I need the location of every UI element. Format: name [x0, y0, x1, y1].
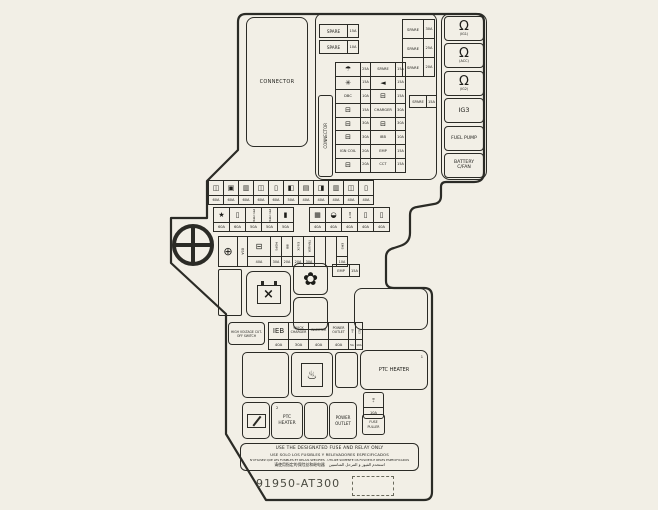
fuse-cell: INVERTER 40A — [308, 322, 329, 350]
spare-fuse-label: SPARE — [319, 24, 348, 38]
fuse-grid-row: ⊟ 30A IBB 10A — [335, 130, 405, 145]
relay-label: (ACC) — [459, 59, 469, 63]
fuse-label: ⊟ — [370, 117, 396, 132]
fuse-cell: ★ 60A — [213, 207, 230, 232]
fuse-rating: 10A — [356, 339, 362, 349]
fuse-label: EMP — [370, 144, 396, 159]
spare-fuse-rating: 20A — [424, 57, 435, 77]
fuse-cell: ▮ 50A — [277, 207, 294, 232]
fuse-rating: 30A — [289, 339, 308, 349]
fuse-rating: 40A — [329, 195, 343, 204]
display-icon — [247, 414, 266, 428]
fuse-label: EMS — [337, 237, 347, 256]
fuse-label: IGN COIL — [335, 144, 361, 159]
spare-fuse-rating: 15A — [348, 24, 359, 38]
relay-column: Ω (IG1) Ω (ACC) Ω (IG2) IG3 FUEL PUMP BA… — [444, 16, 484, 180]
fuse-rating: 40A — [358, 222, 373, 231]
fuse-rating: 20A — [282, 256, 292, 266]
spare-fuse-label: SPARE — [402, 19, 424, 39]
main-connector-box: CONNECTOR — [246, 17, 308, 147]
fuse-rating: 40A — [329, 339, 348, 349]
fuse-rating: 60A — [230, 222, 245, 231]
spare-fuse: SPARE 10A — [319, 40, 359, 54]
relay-box: Ω (ACC) — [444, 43, 484, 68]
spare-fuse-rating: 15A — [427, 95, 437, 108]
fuse-label: PTC HTR — [252, 209, 255, 222]
fuse-rating: 50A — [246, 222, 261, 231]
fuse-label: ⊟ — [335, 103, 361, 118]
power-outlet-box: POWER OUTLET — [329, 402, 357, 439]
spare-fuse: SPARE 30A — [402, 19, 435, 39]
spare-fuse-label: SPARE — [319, 40, 348, 54]
fuse-label: INVERTER — [309, 323, 328, 339]
fuse-rating: 40A — [269, 339, 288, 349]
hv-cutoff-switch-box: HIGH VOLTAGE CUT-OFF SWITCH — [228, 322, 265, 345]
fuse-grid-row: ⊟ 15A CHARGER 30A — [335, 103, 405, 118]
fuse-icon: ▯ — [359, 181, 373, 195]
ptc-heater-2-box: 2 PTC HEATER — [271, 402, 303, 439]
fuse-icon: ◒ — [326, 208, 341, 222]
emp-fuse: EMP 15A — [332, 264, 360, 279]
hv-fuse-row: IEB 40A QUICK CHARGER 30A INVERTER 40A P… — [268, 322, 362, 350]
fuse-grid: ☂ 25A SPARE 15A ✳ 15A ◄ 15A DBC 10A ⊟ 15… — [335, 62, 405, 172]
spare-fuse-label: SPARE — [409, 95, 427, 108]
fuse-rating: 10A — [395, 130, 406, 145]
fuse-cell: IG3 10A — [355, 322, 363, 350]
lone-spare-fuse: SPARE 15A — [409, 95, 437, 110]
fuse-cell: ◒ 40A — [325, 207, 342, 232]
fuse-puller-label: FUSE PULLER — [366, 420, 382, 428]
fuse-rating: 40A — [309, 339, 328, 349]
fuse-label: CHARGER — [370, 103, 396, 118]
fuse-cell: ▯ 40A — [358, 180, 374, 205]
fuse-icon: ◧ — [284, 181, 298, 195]
fuse-rating: 40A — [299, 195, 313, 204]
fuse-icon: ◫ — [344, 181, 358, 195]
empty-relay-box — [242, 352, 289, 398]
fuse-label: ⊟ — [335, 117, 361, 132]
fuse-cell: ▯ 60A — [268, 180, 284, 205]
fuse-label: IBB — [282, 237, 292, 256]
ignition-switch-icon: Ω — [459, 48, 469, 59]
spare-fuse-rating: 30A — [424, 19, 435, 39]
spare-fuses-top-right: SPARE 30A SPARE 25A SPARE 20A — [402, 19, 435, 76]
fuse-icon: ▤ — [299, 181, 313, 195]
fuse-icon: ◫ — [209, 181, 223, 195]
fuse-label: IG3 — [356, 323, 362, 339]
fuse-icon: ◫ — [254, 181, 268, 195]
fuse-label: ☂ — [335, 62, 361, 77]
ptc-heater-1-label: PTC HEATER — [377, 367, 411, 374]
spare-fuse-label: SPARE — [402, 38, 424, 58]
warning-line-zh-ar: 请使用指定的保险丝和继电器 استخدم الفيوز و المرحل الم… — [274, 462, 385, 468]
power-outlet-label: POWER OUTLET — [332, 415, 354, 426]
side-connector-label: CONNECTOR — [323, 123, 328, 149]
fuse-label: SPARE — [370, 62, 396, 77]
fuse-cell: ◨ 40A — [313, 180, 329, 205]
fuse-label: QUICK CHARGER — [289, 323, 308, 339]
fuse-row-b: ★ 60A ▯ 60A PTC HTR 50A PTC HTR 50A ▮ 50… — [213, 207, 389, 232]
fuse-rating: 60A — [209, 195, 223, 204]
fuse-icon: ▯ — [374, 208, 389, 222]
fuse-cell: ◧ 50A — [283, 180, 299, 205]
fuse-label: POWER OUTLET — [329, 323, 348, 339]
fuse-icon: ▯ — [269, 181, 283, 195]
fuse-cell: PTC HTR 50A — [261, 207, 278, 232]
fuse-label: ✳ — [335, 76, 361, 91]
fuse-label: IEB — [269, 323, 288, 339]
fuse-grid-row: ✳ 15A ◄ 15A — [335, 76, 405, 91]
relay-box: Ω (IG1) — [444, 16, 484, 41]
fuse-label: PTC HTR — [268, 209, 271, 222]
fuse-label: DBC — [335, 89, 361, 104]
fuse-rating: 40A — [374, 222, 389, 231]
fuse-grid-row: DBC 10A ⊟ 15A — [335, 89, 405, 104]
fuse-cell: ◫ 60A — [208, 180, 224, 205]
ignition-switch-icon: Ω — [459, 21, 469, 32]
fuse-label: EMP — [332, 264, 350, 277]
part-number: 91950-AT300 — [256, 477, 340, 490]
fuse-rating: 40A — [248, 256, 270, 266]
fuse-grid-row: ⊟ 20A CCT 15A — [335, 158, 405, 173]
fuse-cell: ◫ 60A — [253, 180, 269, 205]
fuse-cell: ⊟ 40A — [247, 236, 271, 267]
fuse-grid-row: IGN COIL 20A EMP 15A — [335, 144, 405, 159]
fuse-icon: PTC HTR — [262, 208, 277, 222]
fuse-rating: 80A — [237, 237, 247, 266]
fuse-rating: 15A — [395, 144, 406, 159]
empty-slot-box — [335, 352, 358, 388]
cooling-fan-box: ✿ — [293, 263, 328, 295]
fuse-cell: ▣ 60A — [223, 180, 239, 205]
spare-fuses-top-left: SPARE 15A SPARE 10A — [319, 24, 359, 56]
fuse-rating: 15A — [350, 264, 360, 277]
fuse-cell: QUICK CHARGER 30A — [288, 322, 309, 350]
fuse-cell: DCT 40A — [341, 207, 358, 232]
relay-label: FUEL PUMP — [447, 136, 481, 141]
fuse-cell: ⊕ 80A — [218, 236, 248, 267]
fuse-label: ⊟ — [370, 89, 396, 104]
fuse-rating: 50A — [262, 222, 277, 231]
fuse-rating: 40A — [342, 222, 357, 231]
fuse-icon: DCT — [342, 208, 357, 222]
fuse-rating: 50A — [278, 222, 293, 231]
relay-label: IG3 — [458, 107, 469, 114]
fuse-icon: ★ — [214, 208, 229, 222]
main-connector-label: CONNECTOR — [260, 79, 295, 85]
fuse-cell: POWER OUTLET 40A — [328, 322, 349, 350]
spare-fuse: SPARE 25A — [402, 38, 435, 58]
fuse-rating: 60A — [224, 195, 238, 204]
fuse-cell: ▯ 40A — [357, 207, 374, 232]
fuse-rating: 15A — [395, 76, 406, 91]
fuse-rating: 30A — [395, 117, 406, 132]
fuse-box-diagram: CONNECTOR SPARE 15A SPARE 10A SPARE 30A … — [0, 0, 658, 510]
spare-fuse-rating: 10A — [348, 40, 359, 54]
fuse-icon: ▣ — [224, 181, 238, 195]
fuse-label: CCT — [370, 158, 396, 173]
fuse-rating: 60A — [214, 222, 229, 231]
spare-fuse: SPARE 20A — [402, 57, 435, 77]
fuse-label: ⊕ — [219, 237, 237, 266]
fuse-label: ⊟ — [335, 130, 361, 145]
relay-box: FUEL PUMP — [444, 126, 484, 151]
fuse-rating: 15A — [395, 158, 406, 173]
fuse-icon: ◨ — [314, 181, 328, 195]
fuse-row-c: ⊕ 80A ⊟ 40A MDPS 30A IBB 20A E/LCK 20A T… — [218, 236, 347, 267]
fuse-rating: 40A — [359, 195, 373, 204]
relay-block: × — [246, 271, 291, 317]
fuse-cell: ◫ 40A — [343, 180, 359, 205]
fuse-label: IBB — [370, 130, 396, 145]
fuse-icon: PTC HTR — [246, 208, 261, 222]
fuse-rating: 60A — [239, 195, 253, 204]
fuse-label: ⊟ — [335, 158, 361, 173]
empty-slot-box — [304, 402, 328, 439]
fuse-cell: EMS 10A — [336, 236, 348, 267]
fuse-label: DCT — [348, 212, 351, 218]
hv-cutoff-switch-label: HIGH VOLTAGE CUT-OFF SWITCH — [230, 330, 263, 338]
relay-box: Ω (IG2) — [444, 71, 484, 96]
warning-label: USE THE DESIGNATED FUSE AND RELAY ONLY U… — [240, 443, 419, 471]
fuse-cell: ▦ 40A — [309, 207, 326, 232]
ignition-switch-icon: Ω — [459, 76, 469, 87]
fuse-rating: 40A — [314, 195, 328, 204]
relay-box: BATTERY C/FAN — [444, 153, 484, 178]
relay-box: IG3 — [444, 98, 484, 123]
side-connector-box: CONNECTOR — [318, 95, 333, 177]
defroster-icon: ♨ — [301, 363, 323, 387]
fuse-grid-row: ⊟ 30A ⊟ 30A — [335, 117, 405, 132]
spare-fuse: SPARE 15A — [319, 24, 359, 38]
fuse-label: MDPS — [271, 237, 281, 256]
ptc-heater-2-label: PTC HEATER — [275, 415, 299, 426]
fuse-icon: ▥ — [329, 181, 343, 195]
box-number: 1 — [421, 354, 423, 361]
empty-slot-box — [218, 269, 242, 316]
fuse-label: TRAILER — [304, 237, 314, 256]
fan-icon: ✿ — [303, 269, 318, 290]
fuse-row-a: ◫ 60A ▣ 60A ▥ 60A ◫ 60A ▯ 60A ◧ 50A ▤ 40… — [208, 180, 373, 205]
relay-label: BATTERY C/FAN — [447, 160, 481, 170]
fuse-rating: 50A — [284, 195, 298, 204]
battery-positive-symbol — [174, 226, 212, 264]
fuse-cell: PTC HTR 50A — [245, 207, 262, 232]
fuse-rating: 40A — [310, 222, 325, 231]
display-box — [242, 402, 270, 439]
fuse-label — [315, 237, 325, 266]
fuse-grid-row: ☂ 25A SPARE 15A — [335, 62, 405, 77]
fuse-puller-box: FUSE PULLER — [362, 414, 385, 435]
fuse-cell: ▥ 60A — [238, 180, 254, 205]
box-number: 2 — [276, 406, 278, 412]
blank-sticker-box — [352, 476, 394, 496]
fuse-rating: 15A — [395, 62, 406, 77]
fuse-icon: ▥ — [239, 181, 253, 195]
fuse-cell: ▥ 40A — [328, 180, 344, 205]
empty-relay-box — [354, 288, 428, 330]
fuse-label: ⊟ — [248, 237, 270, 256]
fuse-rating: 60A — [269, 195, 283, 204]
spare-fuse-rating: 25A — [424, 38, 435, 58]
fuse-rating: 40A — [326, 222, 341, 231]
fuse-cell: ▯ 40A — [373, 207, 390, 232]
fuse-cell: ▤ 40A — [298, 180, 314, 205]
fuse-label — [326, 237, 336, 266]
fuse-icon: ▮ — [278, 208, 293, 222]
relay-x-icon: × — [257, 285, 281, 304]
fuse-icon: ▦ — [310, 208, 325, 222]
fuse-cell: IEB 40A — [268, 322, 289, 350]
fuse-icon: ▯ — [358, 208, 373, 222]
fuse-rating: 60A — [254, 195, 268, 204]
fuse-icon: ▯ — [230, 208, 245, 222]
fuse-rating: 15A — [395, 89, 406, 104]
fuse-rating: 40A — [344, 195, 358, 204]
defroster-box: ♨ — [291, 352, 333, 397]
fuse-label: ◄ — [370, 76, 396, 91]
fuse-rating: 30A — [271, 256, 281, 266]
relay-label: (IG1) — [460, 32, 468, 36]
fuse-label: E/LCK — [293, 237, 303, 256]
fuse-rating: 30A — [395, 103, 406, 118]
fuse-cell: ▯ 60A — [229, 207, 246, 232]
ptc-heater-1-box: 1 PTC HEATER — [360, 350, 428, 390]
fuse-label: B+ — [364, 393, 383, 407]
relay-label: (IG2) — [460, 87, 468, 91]
